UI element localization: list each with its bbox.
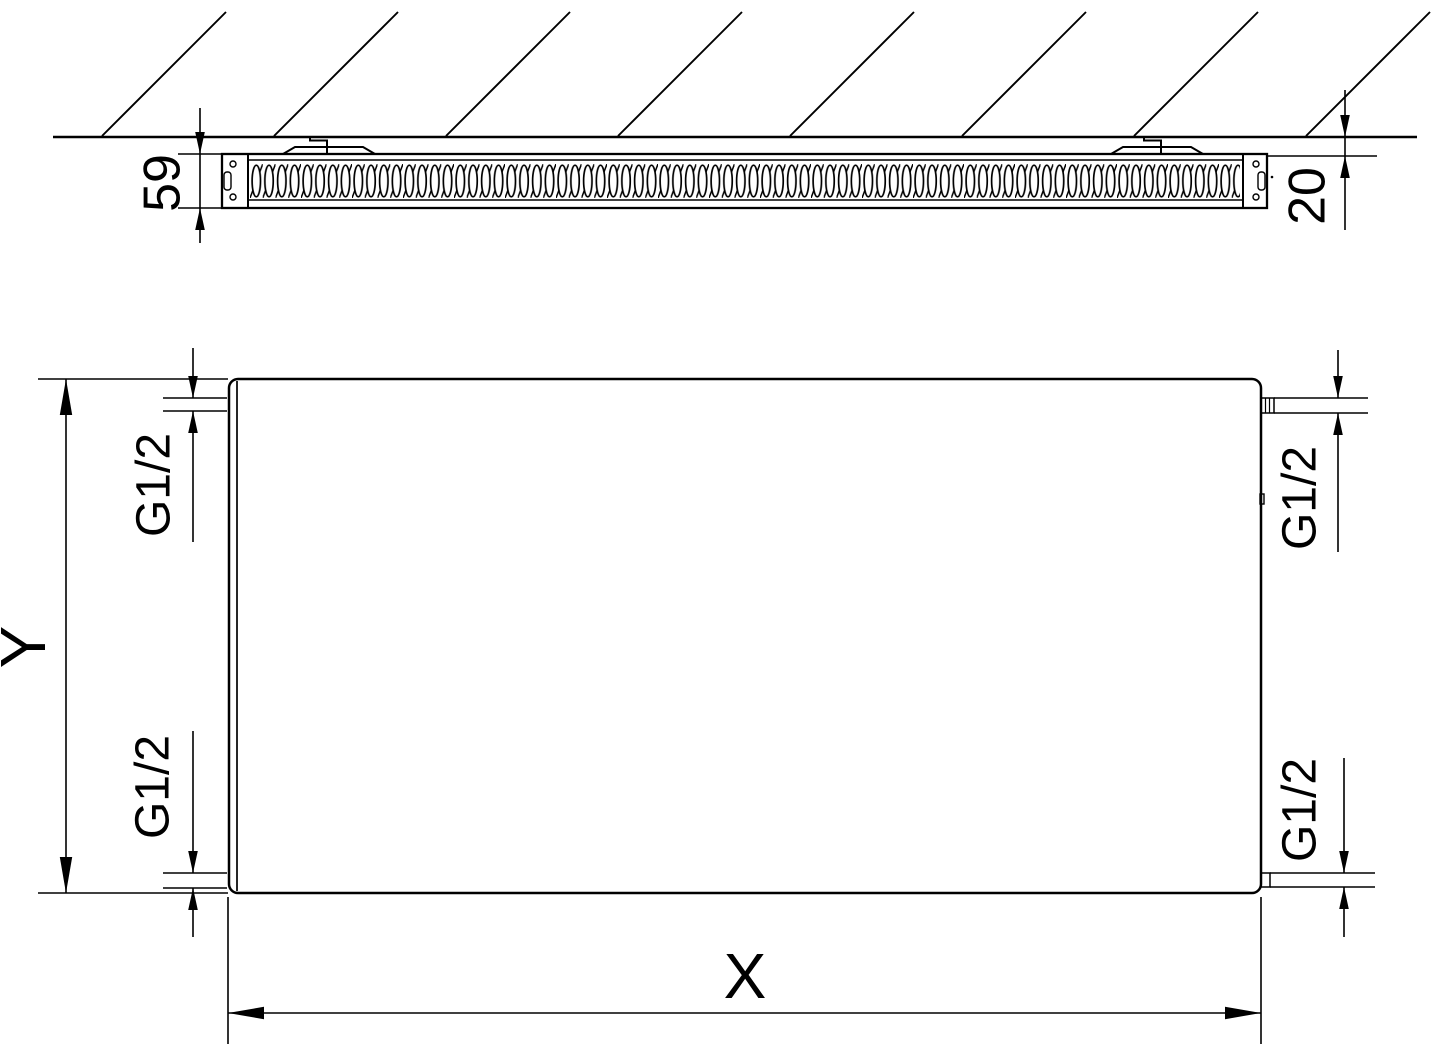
- wall-gap-dimension-label: 20: [1279, 167, 1337, 225]
- width-dimension-label: X: [724, 940, 767, 1012]
- wall-hatch-line: [1134, 12, 1258, 136]
- dimension-depth-59: 59: [134, 108, 226, 243]
- arrowhead-up: [1333, 413, 1343, 435]
- connection-stub-bottom-right: [1261, 873, 1270, 887]
- arrowhead-right: [1225, 1007, 1261, 1019]
- arrowhead-down: [1340, 115, 1350, 137]
- dimension-connection-bottom-left: G1/2: [127, 731, 227, 937]
- detail-dot: [1271, 176, 1274, 179]
- arrowhead-down: [188, 851, 198, 873]
- dimension-connection-bottom-right: G1/2: [1270, 758, 1375, 937]
- dimension-wall-gap-20: 20: [1267, 90, 1377, 230]
- wall-hatch-line: [1306, 12, 1430, 136]
- wall-hook-left: [310, 137, 327, 154]
- arrowhead-left: [228, 1007, 264, 1019]
- depth-dimension-label: 59: [134, 154, 192, 212]
- wall-hatch-line: [102, 12, 226, 136]
- wall-hatch-line: [962, 12, 1086, 136]
- arrowhead-down: [1339, 851, 1349, 873]
- arrowhead-down: [195, 132, 205, 154]
- wall-hatch-line: [446, 12, 570, 136]
- arrowhead-up: [195, 208, 205, 230]
- connection-thread-label: G1/2: [128, 433, 181, 537]
- connection-thread-label: G1/2: [127, 735, 180, 839]
- arrowhead-up: [188, 411, 198, 433]
- radiator-top-view: [222, 137, 1273, 208]
- wall-hatching: [102, 12, 1430, 136]
- arrowhead-up: [60, 379, 72, 415]
- wall-hatch-line: [618, 12, 742, 136]
- convector-fins: [250, 164, 1240, 198]
- connection-stub-top-right: [1261, 398, 1274, 413]
- arrowhead-up: [1340, 156, 1350, 178]
- arrowhead-down: [60, 857, 72, 893]
- connection-thread-label: G1/2: [1274, 758, 1327, 862]
- dimension-width-X: X: [228, 897, 1261, 1044]
- wall-hook-right: [1144, 137, 1161, 154]
- connection-thread-label: G1/2: [1274, 446, 1327, 550]
- dimension-connection-top-left: G1/2: [128, 348, 227, 542]
- wall-section: [53, 12, 1430, 137]
- arrowhead-down: [188, 376, 198, 398]
- arrowhead-up: [188, 888, 198, 910]
- wall-hatch-line: [274, 12, 398, 136]
- wall-hatch-line: [790, 12, 914, 136]
- arrowhead-up: [1339, 887, 1349, 909]
- arrowhead-down: [1333, 376, 1343, 398]
- front-panel-outline: [229, 379, 1261, 893]
- radiator-front-view: [229, 379, 1274, 893]
- height-dimension-label: Y: [0, 626, 59, 669]
- radiator-technical-drawing: 59 20 Y X: [0, 0, 1437, 1049]
- dimension-connection-top-right: G1/2: [1274, 350, 1368, 552]
- drawing-canvas: 59 20 Y X: [0, 0, 1437, 1049]
